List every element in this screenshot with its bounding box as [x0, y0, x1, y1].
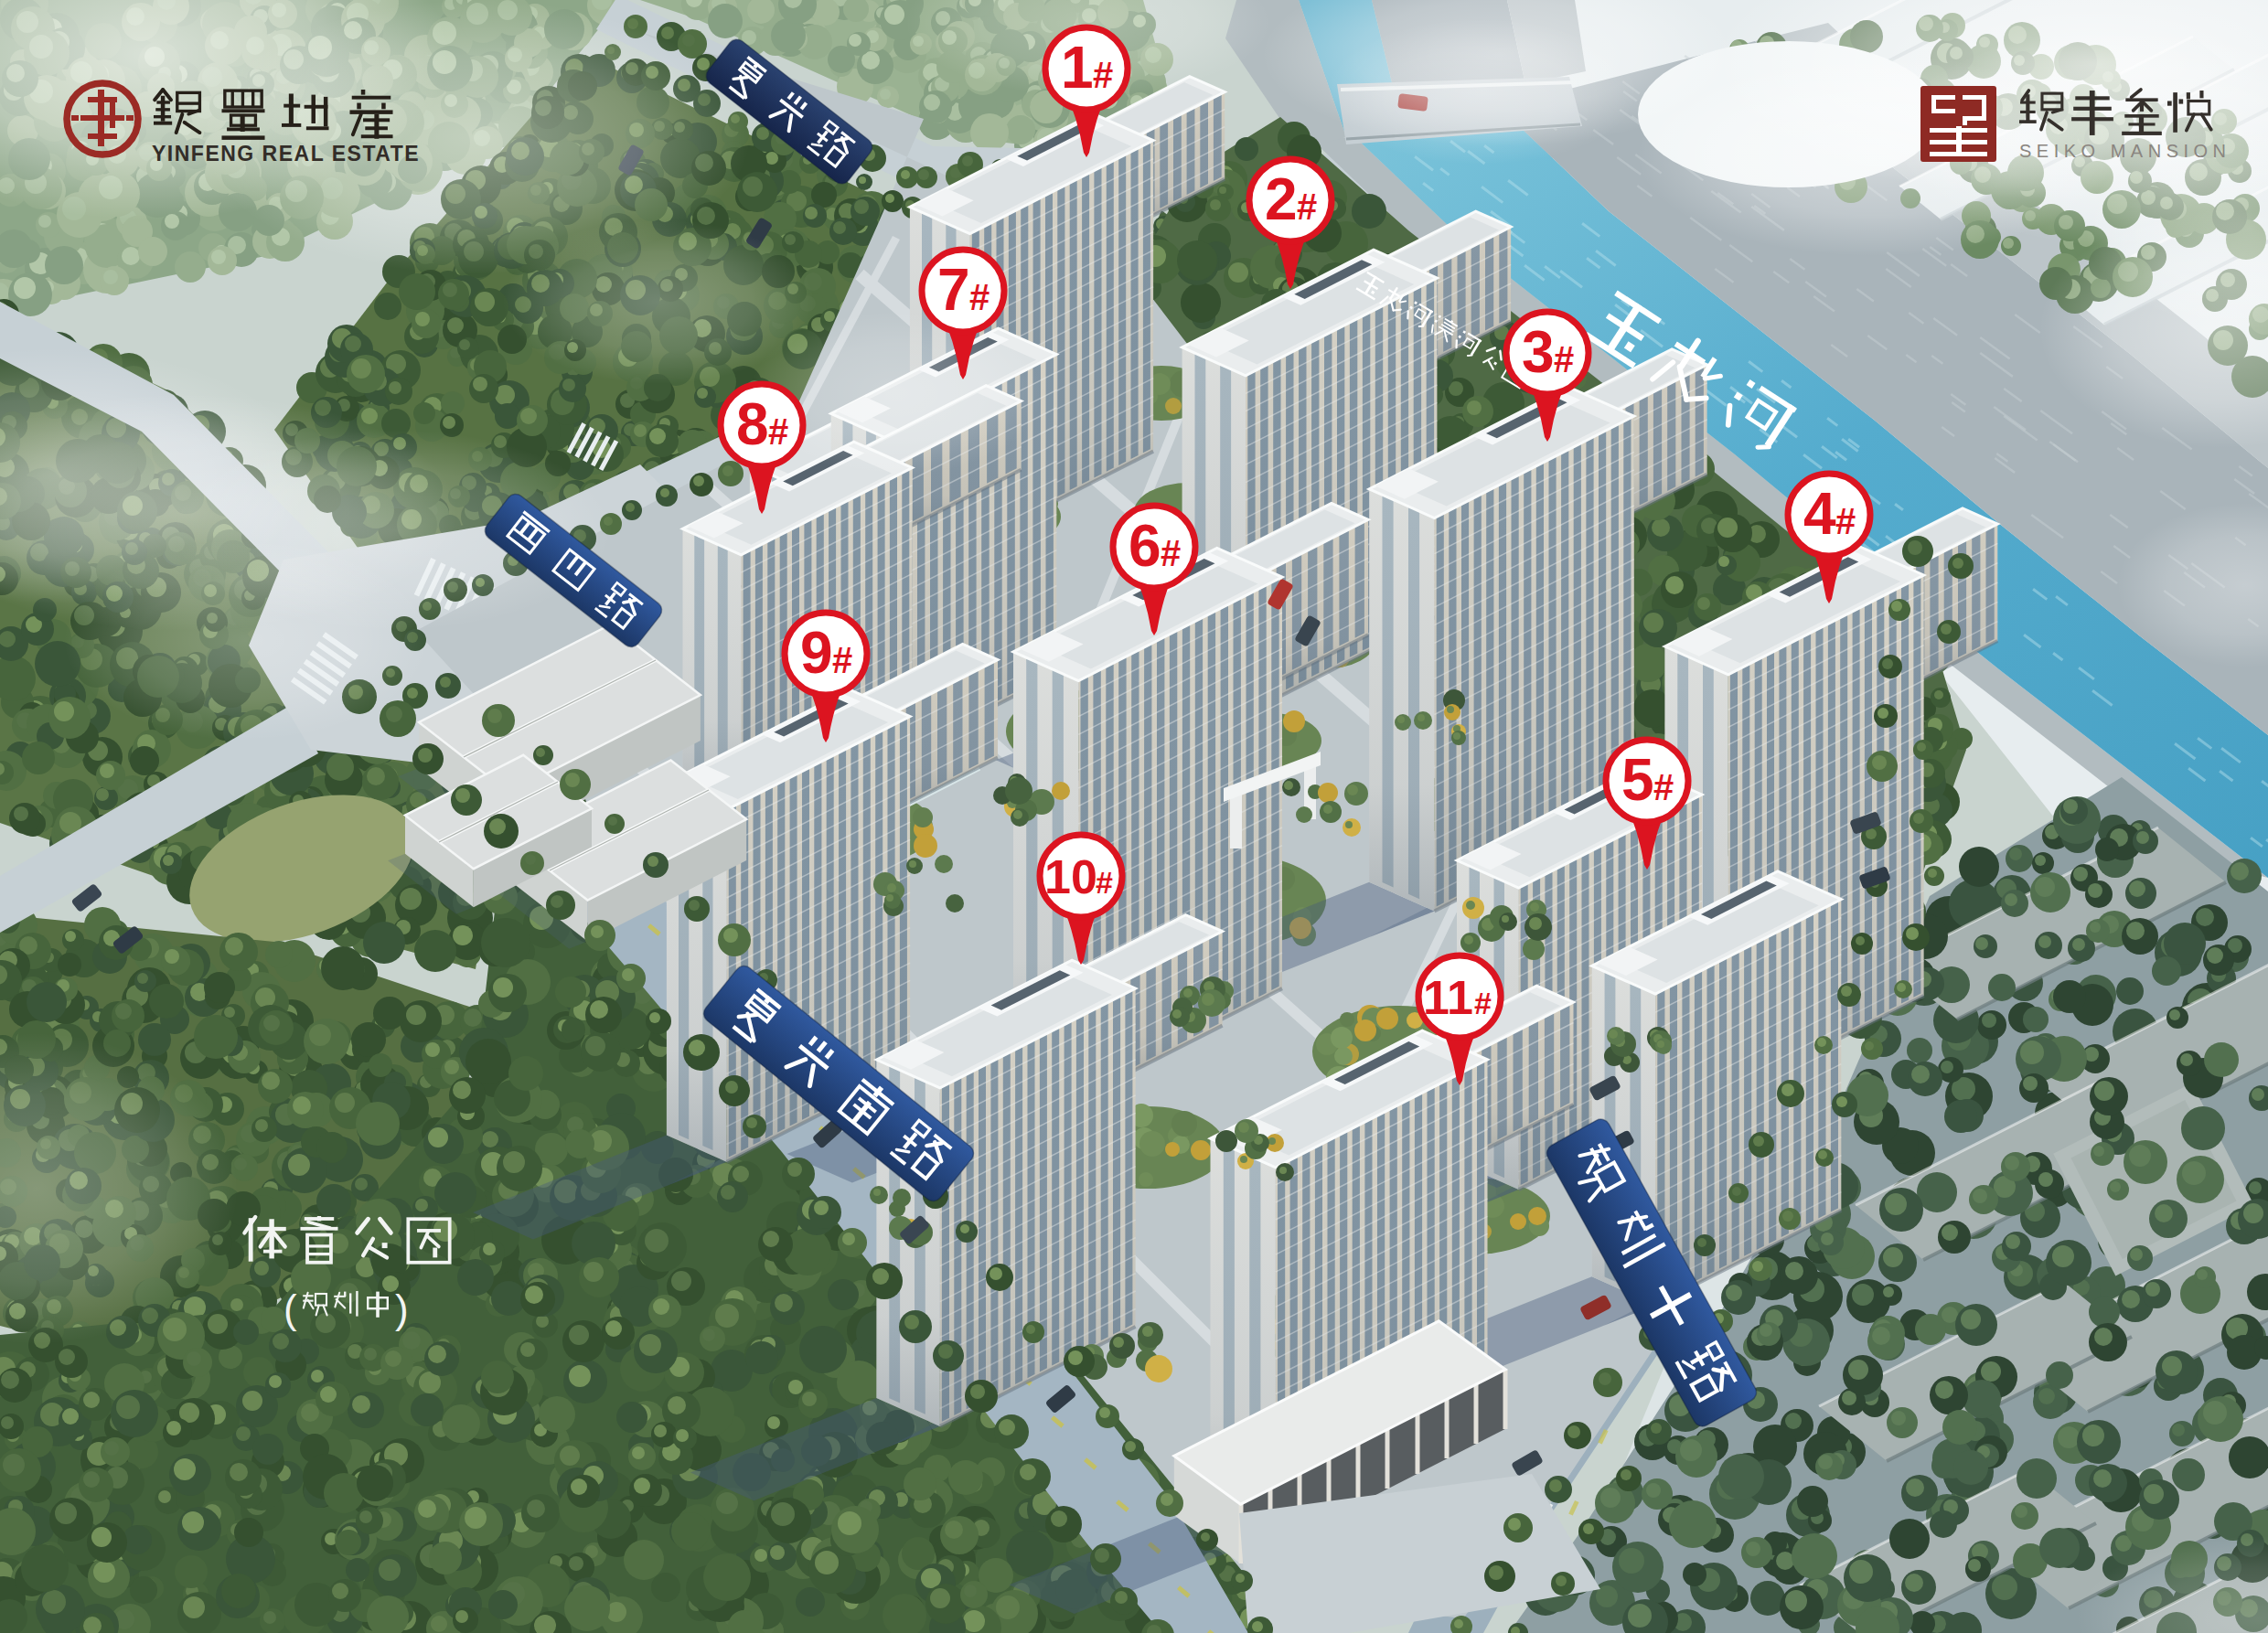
svg-text:9: 9: [800, 620, 833, 686]
svg-text:10: 10: [1044, 850, 1097, 903]
svg-text:#: #: [1096, 865, 1113, 900]
svg-text:#: #: [1835, 501, 1856, 541]
svg-text:): ): [395, 1286, 409, 1331]
svg-text:#: #: [1474, 986, 1492, 1020]
svg-text:#: #: [1653, 767, 1674, 807]
svg-text:2: 2: [1265, 166, 1298, 232]
svg-text:#: #: [1554, 339, 1574, 379]
svg-text:YINFENG REAL ESTATE: YINFENG REAL ESTATE: [152, 142, 420, 165]
svg-text:#: #: [1093, 55, 1113, 95]
svg-text:SEIKO MANSION: SEIKO MANSION: [2019, 141, 2231, 161]
svg-text:3: 3: [1522, 319, 1555, 385]
svg-text:6: 6: [1129, 513, 1161, 579]
svg-text:4: 4: [1803, 481, 1836, 547]
svg-text:11: 11: [1423, 971, 1473, 1024]
svg-text:8: 8: [736, 391, 769, 457]
svg-text:1: 1: [1061, 35, 1094, 101]
svg-text:#: #: [1161, 533, 1181, 573]
svg-text:#: #: [1297, 187, 1317, 227]
svg-text:5: 5: [1621, 747, 1654, 813]
svg-text:#: #: [832, 640, 852, 680]
svg-text:#: #: [768, 411, 788, 452]
svg-text:#: #: [969, 277, 990, 317]
svg-text:(: (: [283, 1286, 297, 1331]
svg-text:7: 7: [937, 257, 970, 323]
